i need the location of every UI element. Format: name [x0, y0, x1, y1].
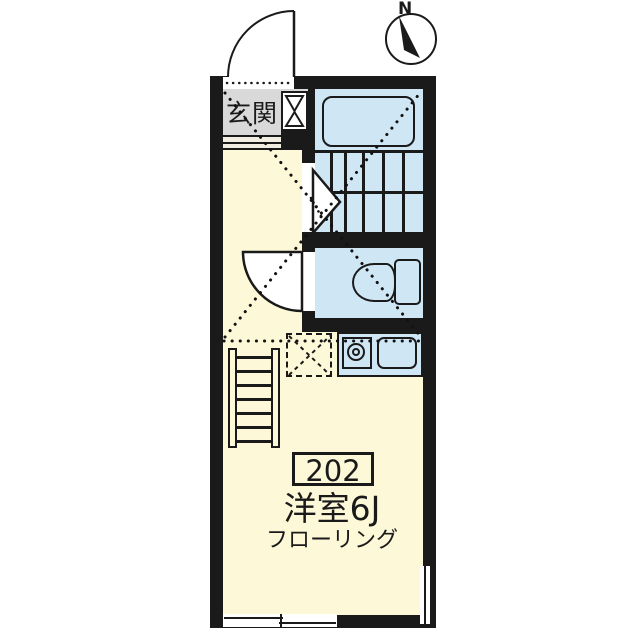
refrigerator-space-icon [286, 333, 332, 377]
step-edge-line [223, 142, 281, 144]
stove-burner-center [352, 348, 360, 356]
entrance-label: 玄関 [226, 99, 278, 129]
flooring-label: フローリング [240, 528, 424, 554]
loft-ladder-rung [237, 370, 271, 373]
toilet-tank [394, 259, 421, 305]
floor-plan: 玄関 202 洋室6J フローリング N [0, 0, 640, 640]
stair-tread [344, 152, 347, 232]
entrance-wall-corner [281, 131, 315, 150]
stair-opening [302, 163, 315, 232]
compass-north-icon [385, 13, 437, 65]
loft-ladder-rung [237, 412, 271, 415]
door-swing-icon [228, 11, 294, 77]
loft-ladder-rail-right [271, 348, 280, 448]
loft-ladder-rung [237, 356, 271, 359]
window-icon-bottom [223, 614, 337, 627]
door-swing-fill [228, 11, 294, 77]
room-type-label: 洋室6J [250, 491, 414, 527]
stair-tread [362, 152, 365, 232]
loft-ladder-rung [237, 426, 271, 429]
loft-ladder-rung [237, 384, 271, 387]
stair-tread [402, 152, 405, 232]
loft-ladder-rung [237, 398, 271, 401]
stair-tread [382, 152, 385, 232]
toilet-door-opening [302, 252, 315, 311]
unit-number-badge: 202 [292, 452, 374, 486]
entrance-threshold [223, 77, 294, 89]
compass-label: N [398, 0, 412, 18]
shoe-cabinet-icon [281, 91, 308, 131]
loft-ladder-rail-left [228, 348, 237, 448]
loft-ladder-rung [237, 440, 271, 443]
window-icon-right [420, 566, 430, 624]
unit-number: 202 [305, 454, 360, 488]
toilet-icon [352, 263, 396, 302]
kitchen-sink-icon [377, 337, 417, 369]
stair-tread [330, 152, 333, 232]
bathtub-icon [322, 96, 415, 147]
entrance-step [223, 135, 281, 150]
